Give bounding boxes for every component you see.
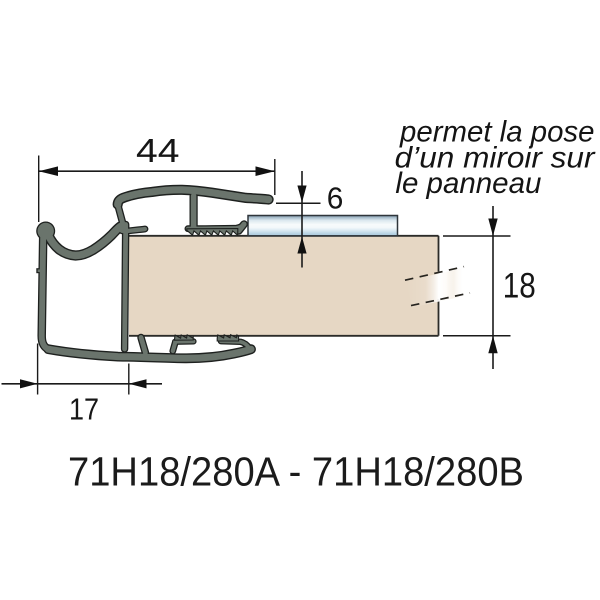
svg-text:le panneau: le panneau <box>395 167 541 200</box>
svg-text:71H18/280A - 71H18/280B: 71H18/280A - 71H18/280B <box>68 449 524 495</box>
svg-text:18: 18 <box>503 266 536 305</box>
svg-text:6: 6 <box>327 180 344 215</box>
svg-text:17: 17 <box>69 392 99 427</box>
svg-text:44: 44 <box>136 132 180 169</box>
